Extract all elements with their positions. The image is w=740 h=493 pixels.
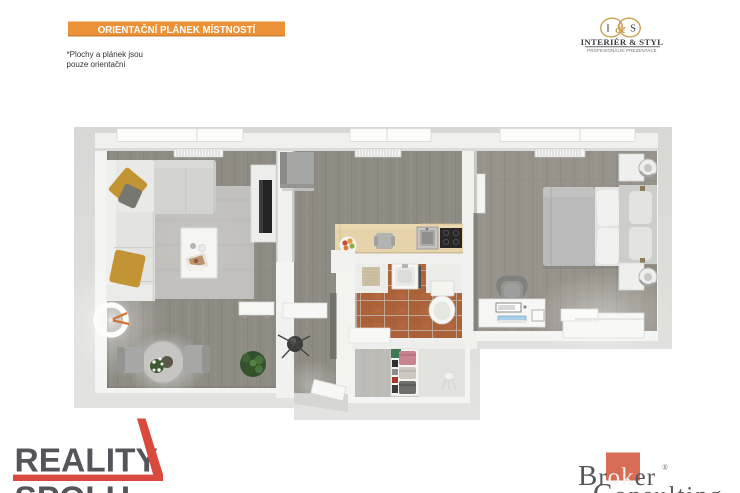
svg-text:PROFESIONÁLNÍ PREZENTACE: PROFESIONÁLNÍ PREZENTACE [587, 48, 656, 53]
svg-text:S: S [630, 24, 636, 35]
svg-text:I: I [606, 24, 610, 35]
svg-text:SPOLU: SPOLU [15, 481, 130, 493]
svg-text:ORIENTAČNÍ PLÁNEK MÍSTNOSTÍ: ORIENTAČNÍ PLÁNEK MÍSTNOSTÍ [98, 24, 256, 36]
svg-text:*Plochy a plánek jsou: *Plochy a plánek jsou [67, 50, 144, 59]
svg-text:&: & [615, 21, 627, 37]
svg-text:®: ® [662, 463, 668, 472]
svg-text:pouze orientační: pouze orientační [67, 60, 127, 69]
svg-text:INTERIÉR & STYL: INTERIÉR & STYL [581, 37, 664, 47]
svg-text:REALITY: REALITY [15, 443, 158, 480]
